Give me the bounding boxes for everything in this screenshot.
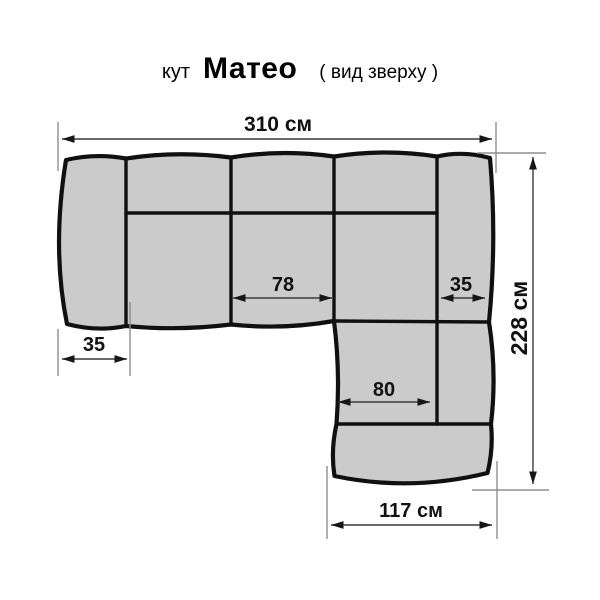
dimension-label-right-armrest: 35 — [450, 274, 472, 296]
seam-corner-section-top — [334, 321, 489, 322]
dimension-label-left-armrest: 35 — [83, 334, 105, 356]
sofa-dimension-drawing: 310 см 228 см 78 35 35 80 117 см — [0, 0, 600, 600]
sofa-body — [59, 153, 494, 484]
dimension-label-total-width: 310 см — [244, 113, 312, 136]
dimension-label-total-depth: 228 см — [506, 281, 532, 356]
furniture-diagram-page: { "title": { "category": "кут", "product… — [0, 0, 600, 600]
dimension-label-chaise-width: 117 см — [379, 500, 443, 522]
dimension-label-seat-width: 78 — [272, 274, 294, 296]
sofa-outline — [59, 153, 494, 484]
dimension-label-chaise-seat: 80 — [373, 379, 395, 401]
